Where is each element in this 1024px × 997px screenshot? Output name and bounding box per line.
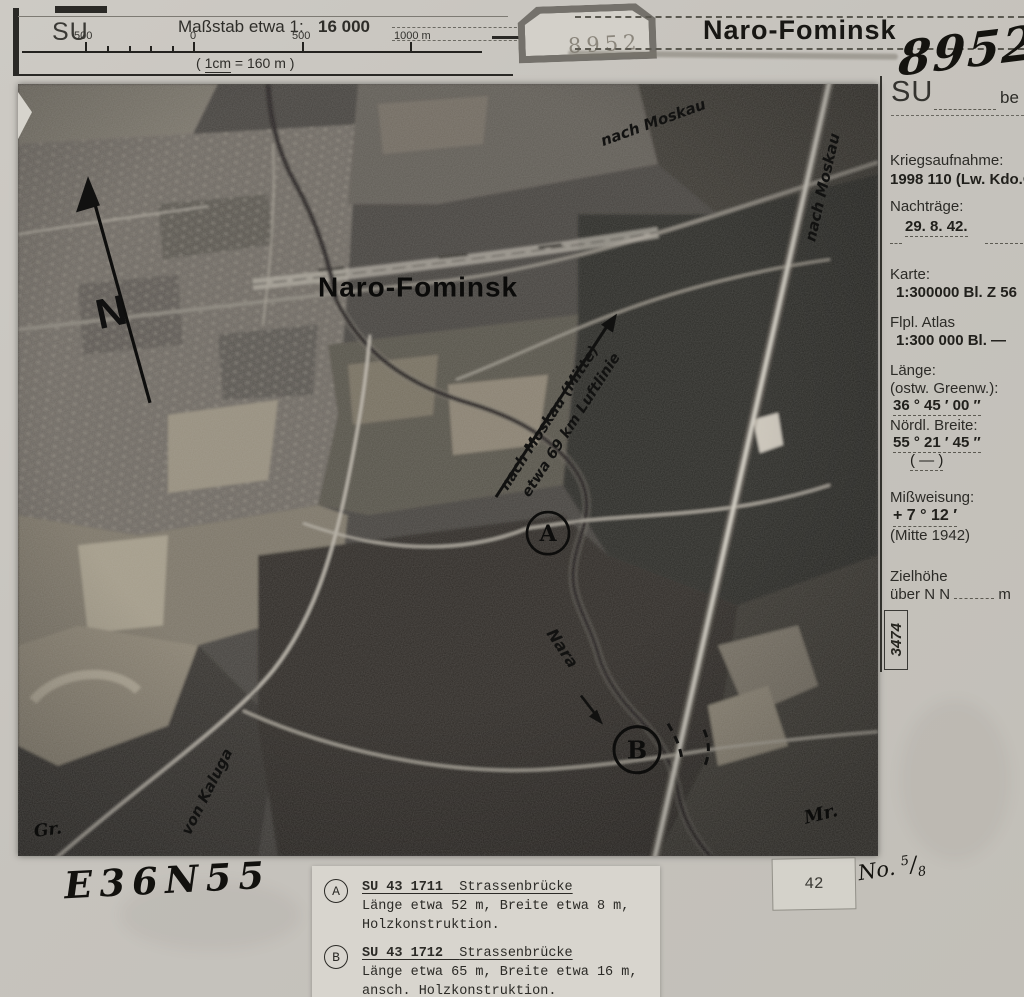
- note-a-marker: A: [324, 879, 348, 903]
- margin-left-rule: [880, 76, 882, 672]
- flpl-atlas-value: 1:300 000 Bl. —: [896, 332, 1006, 349]
- breite-blank: ( — ): [910, 452, 943, 471]
- notes-box: A SU 43 1711 Strassenbrücke Länge etwa 5…: [312, 866, 660, 997]
- aerial-photo: N Naro-Fominsk nach Moskau (Mitte) etwa …: [18, 84, 878, 856]
- note-a-heading: SU 43 1711 Strassenbrücke: [362, 878, 629, 897]
- note-a-dims: Länge etwa 52 m, Breite etwa 8 m,: [362, 897, 629, 916]
- marker-b-label: B: [627, 736, 647, 765]
- note-a-extra: Holzkonstruktion.: [362, 916, 629, 935]
- recon-card: SU Maßstab etwa 1: 16 000 500 0 500 1000…: [0, 0, 1024, 997]
- margin-su-blank: [934, 98, 996, 110]
- zielhoehe-blank: [954, 587, 994, 599]
- missweisung-sub: (Mitte 1942): [890, 527, 970, 544]
- photo-title: Naro-Fominsk: [318, 272, 518, 303]
- scale-tick-500-right: 500: [292, 30, 310, 42]
- note-a: A SU 43 1711 Strassenbrücke Länge etwa 5…: [324, 878, 646, 935]
- note-b-dims: Länge etwa 65 m, Breite etwa 16 m,: [362, 963, 637, 982]
- margin-su-label: SU: [891, 76, 933, 109]
- corner-tape-mark: [55, 6, 107, 13]
- karte-value: 1:300000 Bl. Z 56: [896, 284, 1017, 301]
- laenge-label: Länge:: [890, 362, 936, 379]
- scale-tick-0: 0: [190, 30, 196, 42]
- aerial-photo-svg: N Naro-Fominsk nach Moskau (Mitte) etwa …: [18, 84, 878, 856]
- stamp-42: 42: [772, 857, 857, 910]
- kriegsaufnahme-value: 1998 110 (Lw. Kdo.O: [890, 171, 1024, 188]
- note-b-heading: SU 43 1712 Strassenbrücke: [362, 944, 637, 963]
- paper-stain: [900, 700, 1010, 860]
- scale-tick-1000: 1000 m: [394, 30, 431, 42]
- scale-tick-500-left: 500: [74, 30, 92, 42]
- registry-box: 3474: [884, 610, 908, 670]
- note-b: B SU 43 1712 Strassenbrücke Länge etwa 6…: [324, 944, 646, 997]
- dashed-rule: [392, 27, 522, 28]
- header-left-rule: [13, 8, 19, 76]
- note-b-extra: ansch. Holzkonstruktion.: [362, 982, 637, 997]
- missweisung-value: + 7 ° 12 ′: [893, 507, 957, 527]
- nachtraege-label: Nachträge:: [890, 198, 963, 215]
- laenge-value: 36 ° 45 ′ 00 ″: [893, 397, 981, 416]
- signature-left: Gr.: [33, 818, 63, 842]
- blank: [985, 232, 1023, 244]
- marker-a-label: A: [538, 521, 557, 547]
- laenge-sub: (ostw. Greenw.):: [890, 380, 998, 397]
- margin-su-suffix: be: [1000, 88, 1019, 108]
- scale-note: ( 1cm = 160 m ): [196, 55, 294, 71]
- zielhoehe-line: über N N m: [890, 586, 1011, 603]
- karte-label: Karte:: [890, 266, 930, 283]
- missweisung-label: Mißweisung:: [890, 489, 974, 506]
- breite-value: 55 ° 21 ′ 45 ″: [893, 434, 981, 453]
- registry-number: 3474: [888, 623, 905, 656]
- kriegsaufnahme-label: Kriegsaufnahme:: [890, 152, 1003, 169]
- scale-end-dash: [492, 36, 520, 39]
- nachtraege-value: 29. 8. 42.: [905, 218, 968, 237]
- note-b-marker: B: [324, 945, 348, 969]
- header-bottom-rule: [18, 74, 513, 76]
- blank: [890, 232, 902, 244]
- page-title: Naro-Fominsk: [703, 15, 897, 46]
- photo-grain: [18, 84, 878, 856]
- flpl-atlas-label: Flpl. Atlas: [890, 314, 955, 331]
- number-fraction: No. 5/8: [856, 851, 927, 889]
- breite-label: Nördl. Breite:: [890, 417, 978, 434]
- zielhoehe-label: Zielhöhe: [890, 568, 948, 585]
- scale-note-1cm: 1cm: [205, 55, 231, 73]
- dashed-rule: [891, 115, 1024, 116]
